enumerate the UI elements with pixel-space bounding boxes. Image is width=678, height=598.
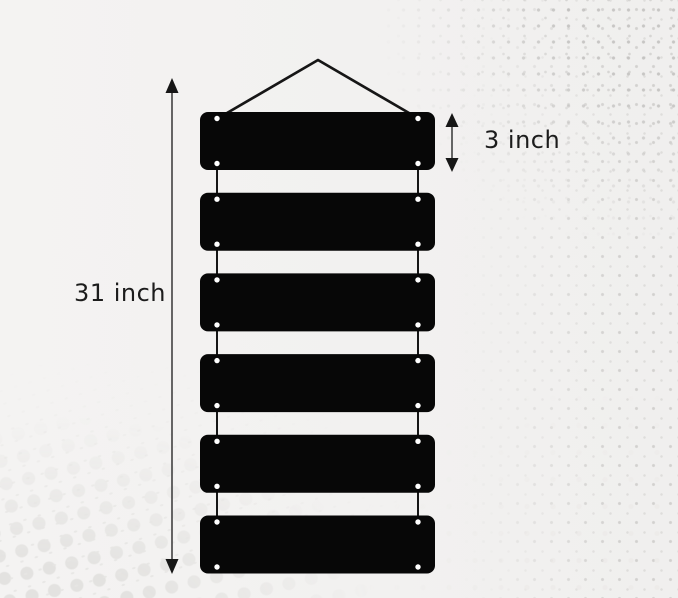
mounting-hole (415, 242, 420, 247)
arrow-down-icon (446, 158, 459, 172)
arrow-down-icon (166, 559, 179, 574)
mounting-hole (415, 484, 420, 489)
mounting-hole (214, 484, 219, 489)
plank-5 (200, 435, 435, 493)
mounting-hole (415, 403, 420, 408)
mounting-hole (214, 519, 219, 524)
mounting-hole (214, 403, 219, 408)
mounting-hole (415, 519, 420, 524)
plank-height-label: 3 inch (484, 126, 560, 154)
mounting-hole (415, 116, 420, 121)
mounting-hole (415, 161, 420, 166)
mounting-hole (214, 358, 219, 363)
mounting-hole (214, 242, 219, 247)
mounting-hole (415, 358, 420, 363)
plank-6 (200, 516, 435, 574)
mounting-hole (214, 564, 219, 569)
plank-stack (200, 112, 435, 574)
mounting-hole (214, 197, 219, 202)
mounting-hole (415, 277, 420, 282)
mounting-hole (214, 322, 219, 327)
mounting-hole (415, 439, 420, 444)
dimension-diagram: 31 inch 3 inch (0, 0, 678, 598)
total-height-dimension: 31 inch (74, 78, 178, 574)
arrow-up-icon (446, 113, 459, 127)
mounting-hole (415, 322, 420, 327)
plank-1 (200, 112, 435, 170)
hanging-string (227, 60, 409, 113)
plank-4 (200, 354, 435, 412)
plank-2 (200, 193, 435, 251)
mounting-hole (214, 161, 219, 166)
plank-height-dimension: 3 inch (446, 113, 561, 172)
mounting-hole (415, 564, 420, 569)
arrow-up-icon (166, 78, 179, 93)
total-height-label: 31 inch (74, 279, 166, 307)
mounting-hole (214, 439, 219, 444)
product-dimension-image: 31 inch 3 inch (0, 0, 678, 598)
mounting-hole (214, 277, 219, 282)
plank-3 (200, 273, 435, 331)
mounting-hole (214, 116, 219, 121)
mounting-hole (415, 197, 420, 202)
